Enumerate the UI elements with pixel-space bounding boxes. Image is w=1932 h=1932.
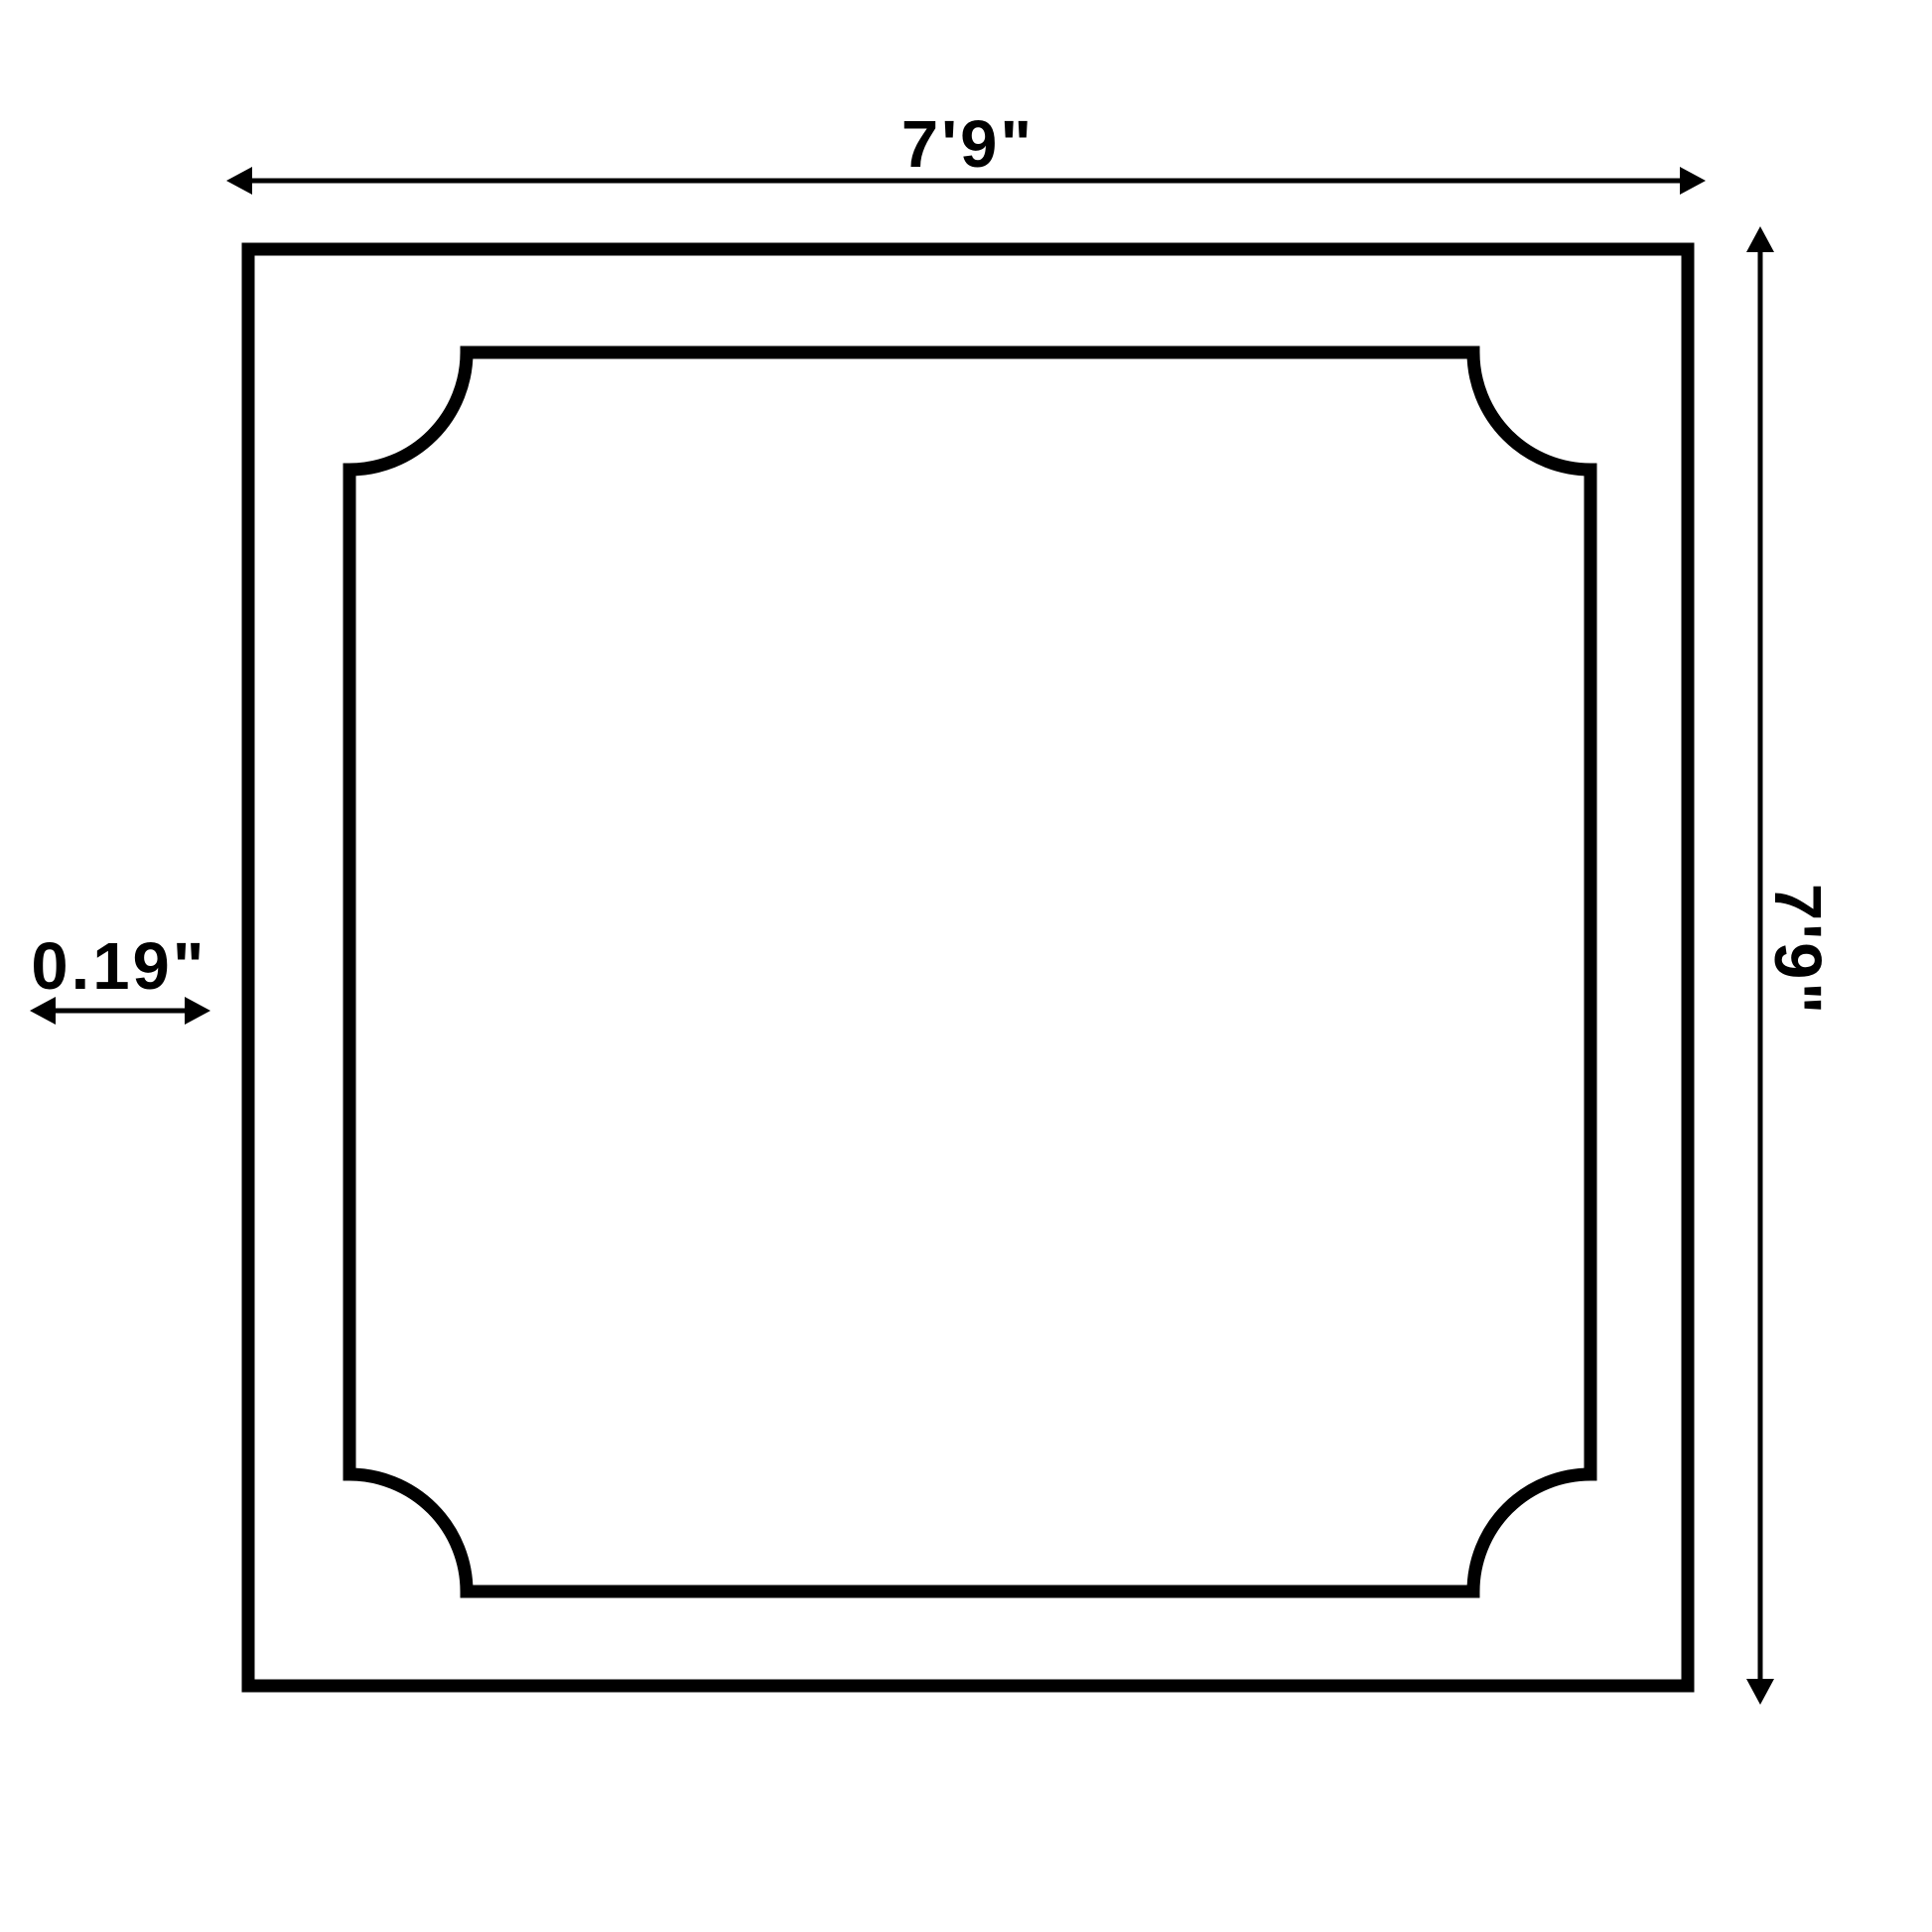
thickness-dimension-label: 0.19" [31, 929, 207, 1004]
dimension-diagram-canvas: 7'9" 7'9" 0.19" [0, 0, 1932, 1932]
diagram-background [0, 0, 1932, 1932]
width-dimension-label: 7'9" [901, 107, 1035, 182]
dimension-diagram: 7'9" 7'9" 0.19" [0, 0, 1932, 1932]
height-dimension-label: 7'9" [1760, 884, 1835, 1017]
